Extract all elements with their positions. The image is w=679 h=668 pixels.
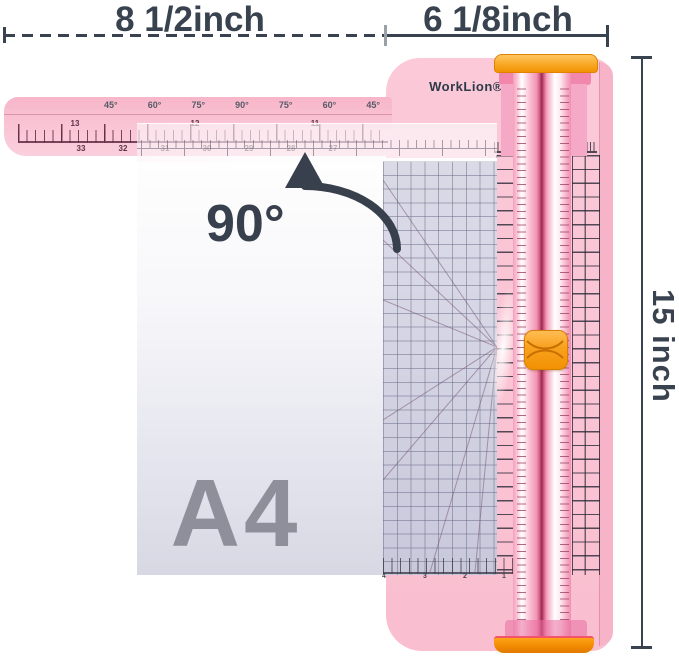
- height-dimension-label: 15 inch: [645, 253, 679, 438]
- angle-label: 75°: [279, 100, 293, 113]
- rotation-arrow-icon: [270, 140, 410, 260]
- rail-end-cap-top: [494, 54, 598, 73]
- paper-size-label: A4: [160, 462, 312, 566]
- base-grid-column-right: [572, 155, 600, 575]
- width-dimension-left-line: [4, 34, 384, 37]
- rail-mount-right: [571, 84, 587, 156]
- product-dimension-diagram: WorkLion® 45° 60° 75° 90° 75° 60° 45° 13…: [0, 0, 679, 668]
- base-right-edge: [599, 62, 613, 646]
- angle-label: 75°: [191, 100, 205, 113]
- plate-scale-number: 2: [460, 573, 470, 580]
- rail-end-cap-bottom: [494, 636, 594, 653]
- arm-cm-number: 32: [116, 144, 130, 153]
- arm-cm-number: 33: [74, 144, 88, 153]
- angle-label: 60°: [323, 100, 337, 113]
- dimension-end-tick: [3, 27, 6, 43]
- angle-label: 45°: [366, 100, 380, 113]
- arm-arch-line: [4, 114, 392, 115]
- plate-scale-number: 3: [420, 573, 430, 580]
- plate-scale-number: 1: [499, 573, 509, 580]
- brand-logo: WorkLion®: [424, 79, 508, 94]
- blade-slider-grip: [525, 331, 565, 367]
- dimension-bottom-tick: [631, 646, 652, 649]
- width-dimension-right-line: [387, 34, 608, 37]
- angle-label: 60°: [148, 100, 162, 113]
- angle-label: 90°: [235, 100, 249, 113]
- height-dimension-line: [641, 57, 643, 647]
- blade-slider[interactable]: [524, 330, 568, 370]
- angle-label: 45°: [104, 100, 118, 113]
- plate-scale-number: 4: [379, 573, 389, 580]
- plate-bottom-ruler: [383, 558, 516, 574]
- arm-angle-scale: 45° 60° 75° 90° 75° 60° 45°: [104, 100, 380, 113]
- dimension-end-tick: [606, 25, 609, 47]
